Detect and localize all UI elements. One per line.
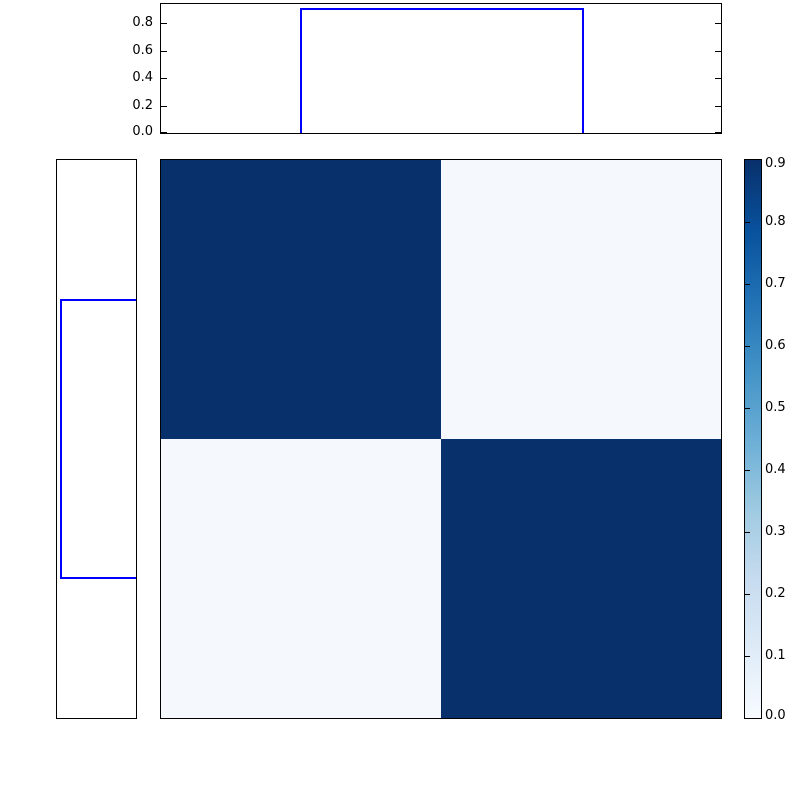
left-step-line (60, 299, 136, 579)
colorbar-tick-label: 0.3 (765, 524, 786, 540)
tick-mark (161, 78, 167, 79)
colorbar-tick-label: 0.7 (765, 276, 786, 292)
top-axes-ytick-label: 0.6 (101, 43, 153, 59)
tick-mark (745, 284, 750, 285)
top-axes-ytick-label: 0.8 (101, 15, 153, 31)
figure-canvas: 0.8 0.6 0.4 0.2 0.0 0.9 0.8 0.7 0.6 0.5 … (0, 0, 800, 800)
tick-mark (715, 78, 721, 79)
tick-mark (715, 23, 721, 24)
tick-mark (161, 51, 167, 52)
colorbar-tick-label: 0.9 (765, 156, 786, 172)
top-axes-ytick-label: 0.2 (101, 98, 153, 114)
colorbar-tick-label: 0.1 (765, 648, 786, 664)
colorbar-tick-label: 0.8 (765, 214, 786, 230)
colorbar-gradient (745, 160, 761, 718)
colorbar-tick-label: 0.2 (765, 586, 786, 602)
tick-mark (745, 346, 750, 347)
tick-mark (745, 656, 750, 657)
heatmap-cell-r1c0 (161, 439, 441, 718)
tick-mark (745, 470, 750, 471)
top-axes-ytick-label: 0.0 (101, 124, 153, 140)
tick-mark (745, 222, 750, 223)
colorbar-tick-label: 0.0 (765, 708, 786, 724)
tick-mark (715, 51, 721, 52)
tick-mark (745, 532, 750, 533)
colorbar-tick-label: 0.4 (765, 462, 786, 478)
top-marginal-axes (160, 3, 722, 134)
left-marginal-axes (56, 159, 137, 719)
heatmap-cell-r0c0 (161, 160, 441, 439)
tick-mark (745, 408, 750, 409)
heatmap-cell-r1c1 (441, 439, 721, 718)
tick-mark (715, 106, 721, 107)
tick-mark (161, 106, 167, 107)
tick-mark (161, 23, 167, 24)
colorbar-tick-label: 0.6 (765, 338, 786, 354)
top-axes-ytick-label: 0.4 (101, 70, 153, 86)
tick-mark (161, 132, 167, 133)
heatmap-axes (160, 159, 722, 719)
heatmap-cell-r0c1 (441, 160, 721, 439)
tick-mark (715, 132, 721, 133)
tick-mark (745, 594, 750, 595)
colorbar (744, 159, 762, 719)
colorbar-tick-label: 0.5 (765, 400, 786, 416)
top-step-line (300, 8, 584, 133)
